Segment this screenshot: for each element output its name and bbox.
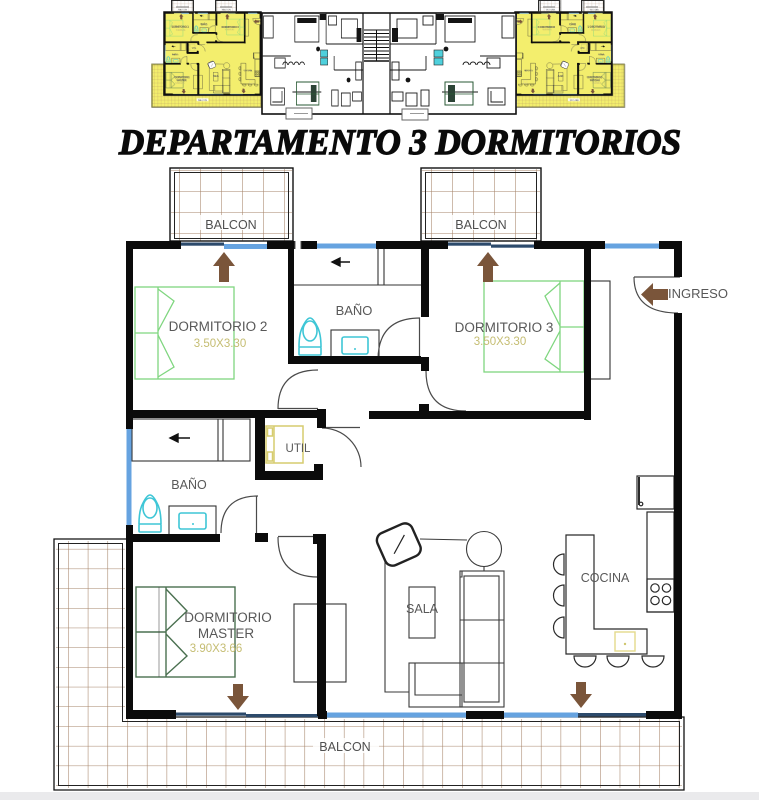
svg-text:BAÑO: BAÑO [336,303,373,318]
svg-text:DORMITORIO 2: DORMITORIO 2 [169,319,268,334]
svg-text:BALCON: BALCON [205,218,256,232]
svg-text:DORMITORIO 3: DORMITORIO 3 [455,320,554,335]
svg-text:3.50X3.30: 3.50X3.30 [194,338,246,350]
svg-text:3.50X3.30: 3.50X3.30 [474,336,526,348]
svg-text:DORMITORIO: DORMITORIO [184,610,272,625]
svg-text:COCINA: COCINA [581,571,630,585]
svg-text:BAÑO: BAÑO [171,478,207,492]
svg-text:DEPARTAMENTO 3 DORMITORIOS: DEPARTAMENTO 3 DORMITORIOS [118,122,681,162]
svg-text:SALA: SALA [406,602,439,616]
svg-text:UTIL: UTIL [286,443,312,455]
svg-text:MASTER: MASTER [198,626,255,641]
svg-text:INGRESO: INGRESO [668,286,728,301]
svg-text:BALCON: BALCON [319,740,370,754]
svg-text:3.90X3.66: 3.90X3.66 [190,643,242,655]
svg-text:BALCON: BALCON [455,218,506,232]
